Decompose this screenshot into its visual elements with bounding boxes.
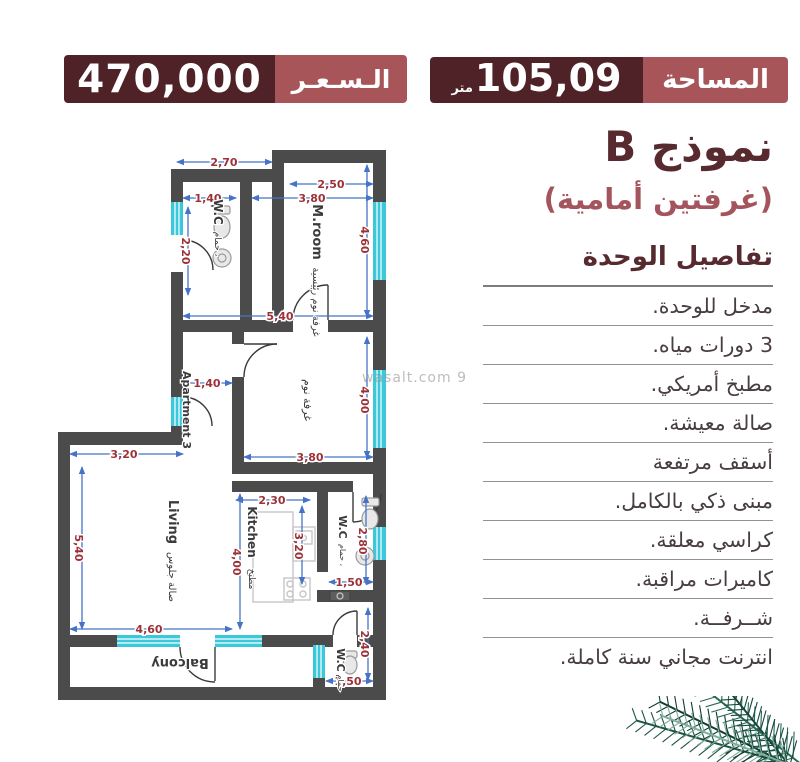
dim-label-380-bed: 3,80 xyxy=(296,451,323,464)
details-heading: تفاصيل الوحدة xyxy=(483,242,773,287)
room-label-wc-mid-ar: حمام ، xyxy=(338,544,347,566)
room-label-kitchen: Kitchen xyxy=(245,506,259,558)
dim-label-320-living: 3,20 xyxy=(110,448,137,461)
price-value: 470,000 xyxy=(64,55,275,103)
area-label: المساحة xyxy=(643,57,788,103)
feature-item: مطبخ أمريكي. xyxy=(483,365,773,404)
dim-label-400-right: 4,00 xyxy=(358,386,371,413)
price-label: الـسـعـر xyxy=(275,55,407,103)
watermark: wasalt.com 9 xyxy=(362,370,467,386)
room-label-apartment: Apartment 3 xyxy=(180,371,193,449)
room-label-wc-mid: W.C xyxy=(336,515,349,539)
dim-label-250: 2,50 xyxy=(317,178,344,191)
model-title: نموذج B xyxy=(483,124,773,170)
feature-item: أسقف مرتفعة xyxy=(483,443,773,482)
room-label-mroom-ar: غرفة نوم رئيسية xyxy=(310,267,321,336)
dim-label-220: 2,20 xyxy=(179,237,192,264)
dim-label-460-right: 4,60 xyxy=(358,226,371,253)
room-label-bedroom-ar: غرفة نوم xyxy=(301,379,314,421)
area-value-wrap: متر 105,09 xyxy=(430,57,643,103)
feature-item: صالة معيشة. xyxy=(483,404,773,443)
flyer-page: { "top": { "price": { "value": "470,000"… xyxy=(0,0,800,762)
palm-leaf-decoration xyxy=(620,696,800,762)
feature-list: مدخل للوحدة. 3 دورات مياه. مطبخ أمريكي. … xyxy=(483,287,773,676)
feature-item: شــرفــة. xyxy=(483,599,773,638)
feature-item: 3 دورات مياه. xyxy=(483,326,773,365)
room-label-wc-top: W.C xyxy=(211,199,225,225)
dim-label-540-living: 5,40 xyxy=(72,534,85,561)
dim-label-140-hall: 1,40 xyxy=(193,377,220,390)
feature-item: انترنت مجاني سنة كاملة. xyxy=(483,638,773,676)
feature-item: كراسي معلقة. xyxy=(483,521,773,560)
dim-label-400-kitchen: 4,00 xyxy=(230,548,243,575)
area-box: متر 105,09 المساحة xyxy=(430,57,788,103)
model-subtitle: (غرفتين أمامية) xyxy=(483,184,773,216)
room-label-wc-bottom-ar: حمام xyxy=(336,675,345,692)
room-label-living: Living xyxy=(165,500,180,544)
area-value: 105,09 xyxy=(475,57,622,100)
room-label-wc-top-ar: حمام ، xyxy=(212,232,222,257)
feature-item: مبنى ذكي بالكامل. xyxy=(483,482,773,521)
dim-label-240: 2,40 xyxy=(358,630,371,657)
dim-label-270: 2,70 xyxy=(210,156,237,169)
room-label-balcony: Balcony xyxy=(151,655,209,670)
room-label-kitchen-ar: مطبخ xyxy=(246,569,256,590)
dim-label-280: 2,80 xyxy=(356,527,369,554)
room-label-mroom: M.room xyxy=(309,204,324,260)
dim-label-540-top: 5,40 xyxy=(266,310,293,323)
room-label-wc-bottom: W.C xyxy=(334,648,347,672)
dim-label-150-wc: 1,50 xyxy=(335,576,362,589)
dim-label-380-top: 3,80 xyxy=(298,192,325,205)
area-unit: متر xyxy=(451,81,472,96)
dim-label-230: 2,30 xyxy=(258,494,285,507)
room-label-living-ar: صالة جلوس xyxy=(166,552,177,602)
feature-item: مدخل للوحدة. xyxy=(483,287,773,326)
floor-plan: 2,70 2,50 1,40 3,80 2,20 4,60 5,40 1,40 … xyxy=(40,132,470,757)
dim-label-320-kitchen: 3,20 xyxy=(292,532,305,559)
unit-details-panel: نموذج B (غرفتين أمامية) تفاصيل الوحدة مد… xyxy=(483,124,773,676)
feature-item: كاميرات مراقبة. xyxy=(483,560,773,599)
price-box: 470,000 الـسـعـر xyxy=(64,55,407,103)
dim-label-460-bottom: 4,60 xyxy=(135,623,162,636)
